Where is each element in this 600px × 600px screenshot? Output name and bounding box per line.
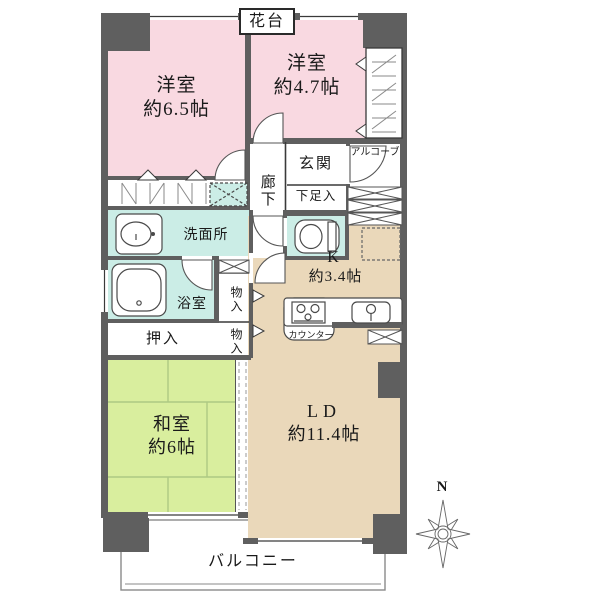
label-flower-stand: 花台 [240, 12, 294, 32]
window-top-west [150, 13, 238, 20]
window-japanese-room [148, 512, 238, 518]
pipe-space-kitchen [368, 330, 402, 344]
room-name: 和室 [110, 413, 234, 436]
compass-rose [413, 500, 472, 568]
meter-box-2 [348, 200, 402, 212]
meter-box-1 [348, 187, 402, 199]
label-western-6-5: 洋室 約6.5帖 [109, 74, 244, 122]
room-name: 洋室 [247, 52, 367, 76]
label-futon-closet: 押入 [113, 330, 213, 349]
label-living-dining: LD 約11.4帖 [254, 400, 394, 445]
room-name: K [278, 248, 393, 268]
room-size: 約3.4帖 [278, 268, 393, 287]
room-size: 約6.5帖 [109, 98, 244, 122]
closet-western-6-5 [108, 180, 215, 206]
label-japanese-room: 和室 約6帖 [110, 413, 234, 458]
room-size: 約4.7帖 [247, 76, 367, 100]
window-bathroom-left [101, 270, 108, 312]
pipe-space-storage [219, 260, 249, 273]
window-ld [258, 538, 362, 544]
closet-4-7 [366, 48, 402, 138]
room-size: 約6帖 [110, 436, 234, 459]
floorplan-image: 洋室 約6.5帖 洋室 約4.7帖 花台 アルコーブ 玄関 下足入 廊下 洗面所… [0, 0, 600, 600]
label-alcove: アルコーブ [346, 147, 404, 160]
room-name: 洋室 [109, 74, 244, 98]
label-storage-upper: 物入 [228, 282, 243, 318]
label-storage-lower: 物入 [228, 326, 243, 358]
label-shoe-cabinet: 下足入 [287, 189, 345, 205]
label-balcony: バルコニー [168, 552, 338, 572]
label-kitchen: K 約3.4帖 [278, 248, 393, 287]
washbasin-icon [116, 214, 162, 254]
room-size: 約11.4帖 [254, 423, 394, 446]
stove-icon [292, 302, 325, 323]
label-counter: カウンター [282, 330, 340, 341]
label-entrance: 玄関 [287, 155, 345, 174]
label-corridor: 廊下 [257, 163, 276, 219]
meter-box-3 [348, 213, 402, 225]
label-western-4-7: 洋室 約4.7帖 [247, 52, 367, 100]
room-name: LD [254, 400, 394, 423]
kitchen-sink-icon [352, 302, 390, 323]
bathtub-icon [112, 264, 166, 316]
label-washroom: 洗面所 [165, 227, 247, 245]
label-bathroom: 浴室 [169, 296, 215, 314]
label-compass-north: N [430, 478, 456, 497]
washing-machine-pan-icon [210, 183, 247, 206]
window-top-east [300, 13, 358, 20]
